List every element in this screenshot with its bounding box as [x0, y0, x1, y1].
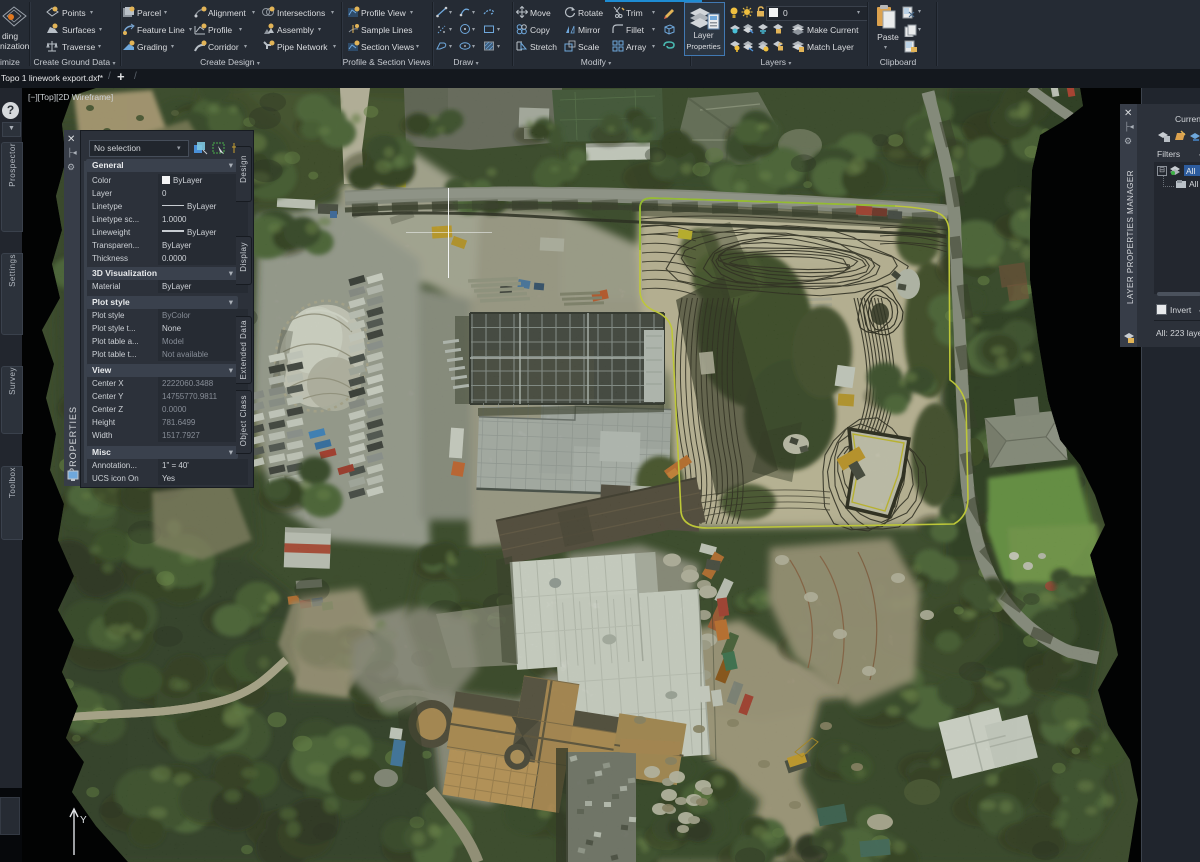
svg-text:Y: Y: [80, 815, 87, 826]
